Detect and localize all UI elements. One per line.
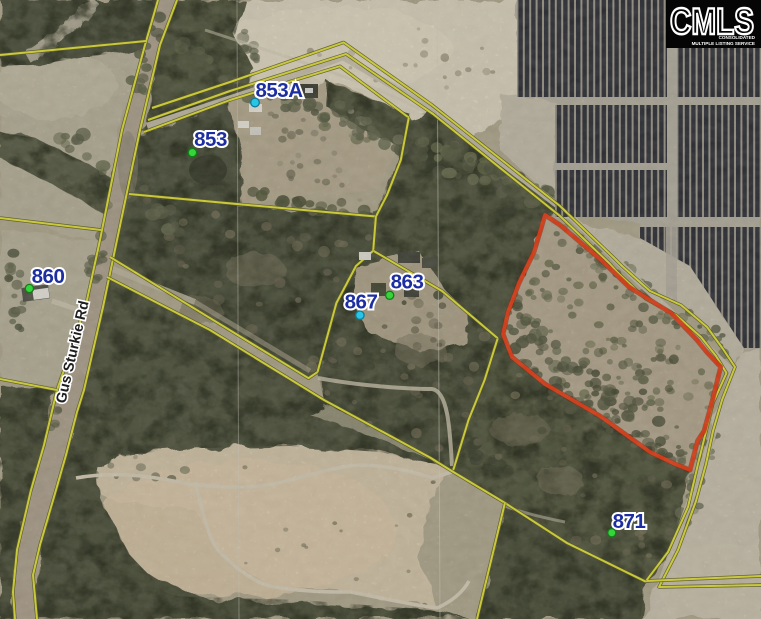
svg-text:853: 853 bbox=[194, 128, 227, 151]
svg-text:860: 860 bbox=[32, 265, 65, 288]
svg-text:871: 871 bbox=[613, 510, 646, 533]
svg-text:853A: 853A bbox=[255, 79, 303, 102]
svg-text:CONSOLIDATED: CONSOLIDATED bbox=[719, 35, 756, 40]
svg-text:MULTIPLE LISTING SERVICE: MULTIPLE LISTING SERVICE bbox=[692, 41, 755, 46]
svg-text:867: 867 bbox=[345, 291, 378, 314]
svg-text:863: 863 bbox=[391, 271, 424, 294]
